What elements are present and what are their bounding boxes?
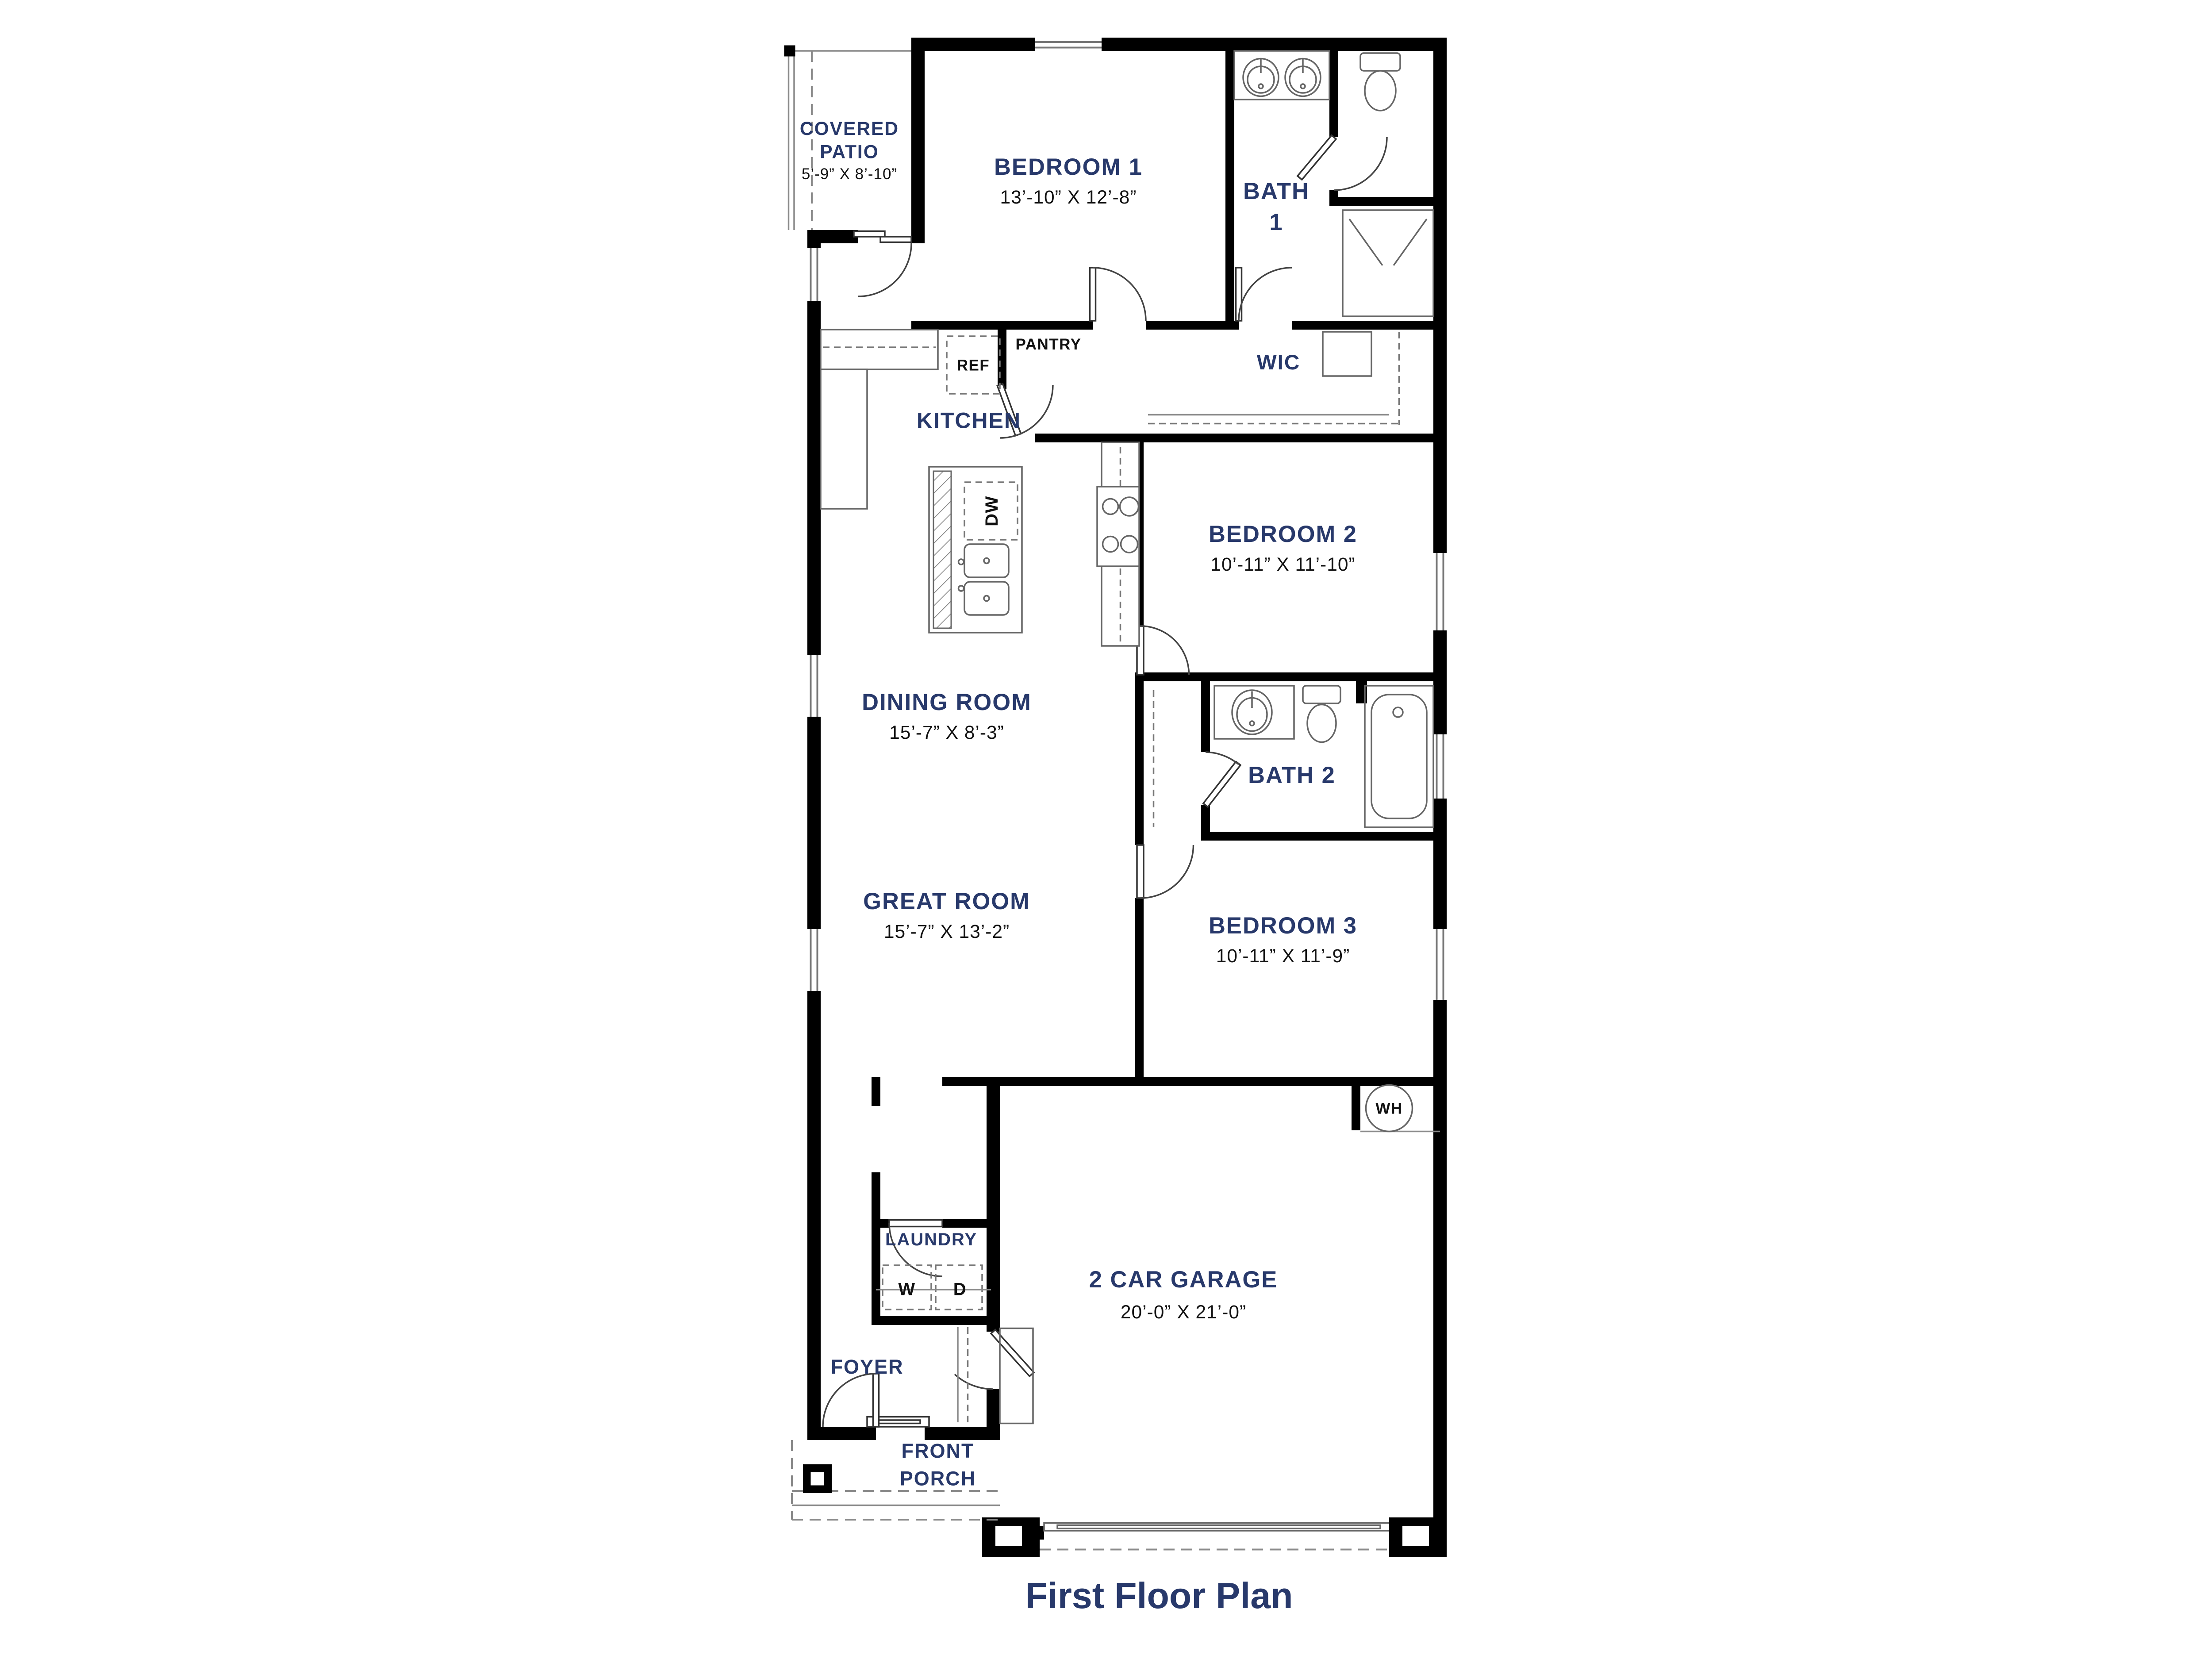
bedroom2-dims: 10’-11” X 11’-10”	[1210, 554, 1355, 575]
kitchen-fixtures: DW	[821, 330, 1139, 646]
covered-patio: COVERED PATIO 5’-9” X 8’-10”	[784, 46, 912, 230]
great-room-label: GREAT ROOM	[863, 888, 1030, 914]
floor-plan: COVERED PATIO 5’-9” X 8’-10”	[0, 0, 2212, 1659]
garage-dims: 20’-0” X 21’-0”	[1121, 1302, 1246, 1323]
foyer-label: FOYER	[830, 1356, 903, 1378]
window-left-dining-top	[806, 248, 822, 301]
laundry-label: LAUNDRY	[885, 1230, 977, 1249]
dishwasher-label: DW	[982, 495, 1002, 526]
dining-room-label: DINING ROOM	[862, 689, 1032, 715]
wic-closet	[1148, 332, 1399, 425]
bedroom3-label: BEDROOM 3	[1209, 913, 1357, 939]
pantry-label: PANTRY	[1016, 336, 1082, 353]
water-heater-icon: WH	[1366, 1085, 1413, 1132]
bath2-label: BATH 2	[1248, 762, 1336, 788]
bath1-label-1: BATH	[1243, 178, 1310, 204]
page-title: First Floor Plan	[1025, 1575, 1293, 1616]
patio-slider-door	[854, 231, 911, 297]
bath1-label-2: 1	[1269, 209, 1283, 235]
bedroom2-label: BEDROOM 2	[1209, 521, 1357, 547]
window-bedroom1-top	[1035, 37, 1102, 52]
front-door	[823, 1374, 929, 1427]
covered-patio-label-1: COVERED	[800, 119, 899, 139]
linen-shelf	[1323, 332, 1371, 376]
front-porch-label-1: FRONT	[902, 1440, 975, 1462]
bedroom1-door	[1090, 268, 1146, 321]
bedroom3-door	[1137, 845, 1194, 898]
laundry-fixtures	[876, 1265, 991, 1310]
bedroom3-dims: 10’-11” X 11’-9”	[1216, 946, 1350, 967]
kitchen-label: KITCHEN	[917, 408, 1021, 433]
bath1-door	[1236, 268, 1292, 321]
bedroom1-label: BEDROOM 1	[994, 154, 1143, 180]
garage-label: 2 CAR GARAGE	[1089, 1267, 1278, 1293]
floor-plan-page: COVERED PATIO 5’-9” X 8’-10”	[0, 0, 2212, 1659]
washer-label: W	[898, 1280, 915, 1299]
window-left-great-room	[806, 929, 822, 991]
window-bedroom3	[1432, 929, 1448, 1000]
refrigerator-label: REF	[957, 357, 990, 374]
covered-patio-label-2: PATIO	[820, 142, 879, 163]
covered-patio-dims: 5’-9” X 8’-10”	[802, 165, 897, 183]
range-icon	[1097, 487, 1139, 566]
kitchen-counter-top	[821, 330, 938, 369]
kitchen-counter-left	[821, 369, 867, 509]
window-left-dining	[806, 655, 822, 717]
bath1-shower-icon	[1343, 210, 1433, 316]
front-porch-label-2: PORCH	[900, 1467, 976, 1490]
bath2-toilet-icon	[1303, 686, 1340, 742]
window-bath2	[1432, 734, 1448, 799]
bath2-door	[1203, 752, 1240, 807]
wic-label: WIC	[1257, 351, 1300, 374]
garage-door	[987, 1523, 1447, 1550]
water-heater-label: WH	[1375, 1100, 1402, 1118]
island-bar-hatch	[933, 471, 951, 628]
dryer-label: D	[953, 1280, 967, 1299]
bath2-tub-icon	[1365, 686, 1433, 827]
bath2-fixtures	[1214, 686, 1433, 827]
water-closet-door	[1298, 135, 1387, 190]
bath1-toilet-icon	[1360, 53, 1400, 111]
great-room-dims: 15’-7” X 13’-2”	[884, 922, 1010, 942]
bedroom2-door	[1137, 626, 1189, 675]
dining-room-dims: 15’-7” X 8’-3”	[889, 722, 1004, 743]
bedroom1-dims: 13’-10” X 12’-8”	[1000, 187, 1137, 208]
porch-column	[803, 1464, 832, 1493]
kitchen-island: DW	[929, 467, 1022, 633]
window-bedroom2	[1432, 553, 1448, 630]
garage-entry-door	[955, 1330, 1034, 1389]
